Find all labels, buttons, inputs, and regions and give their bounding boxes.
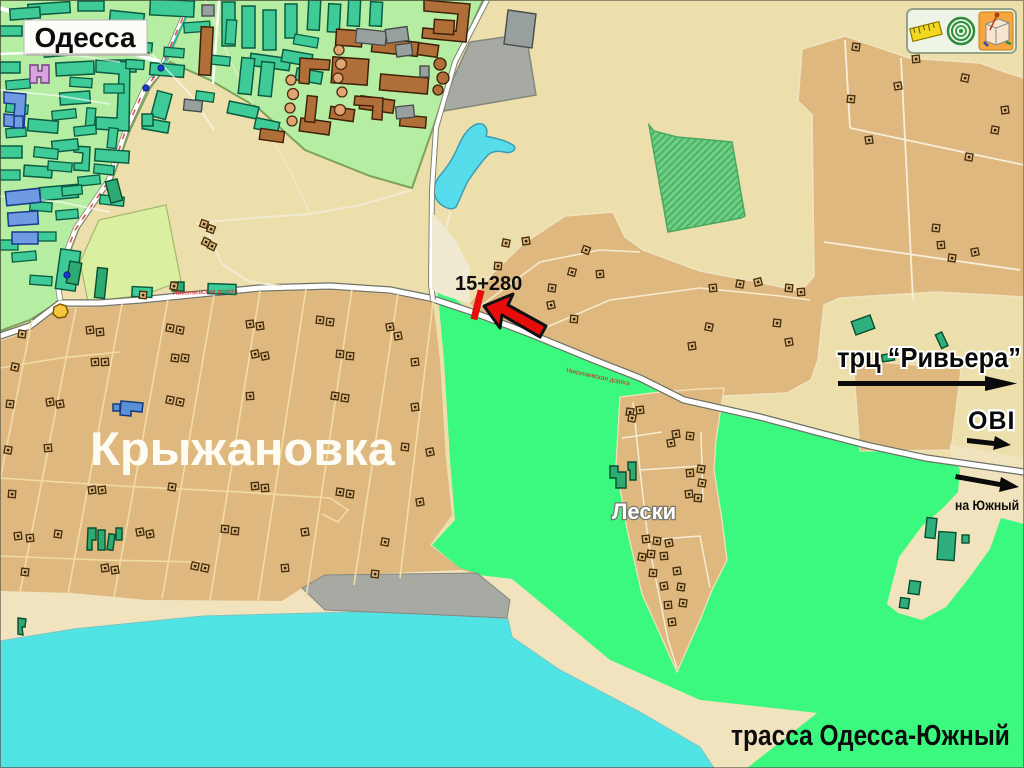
svg-text:15+280: 15+280 (455, 273, 522, 295)
svg-text:трасса Одесса-Южный: трасса Одесса-Южный (731, 719, 1010, 751)
svg-text:Крыжановка: Крыжановка (90, 424, 395, 476)
svg-text:на Южный: на Южный (955, 497, 1019, 513)
svg-text:трц “Ривьера”: трц “Ривьера” (837, 342, 1021, 373)
svg-text:Лески: Лески (612, 499, 676, 524)
svg-text:Одесса: Одесса (34, 22, 136, 53)
svg-text:OBI: OBI (968, 407, 1015, 435)
